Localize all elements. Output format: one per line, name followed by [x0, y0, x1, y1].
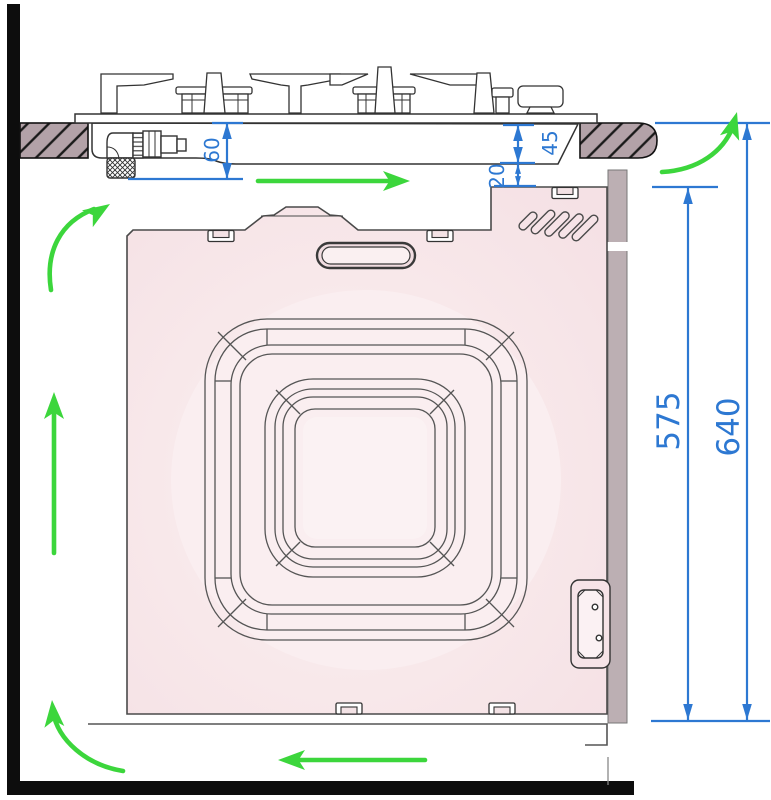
- dimension-20-label: 20: [485, 163, 509, 188]
- airflow-under-oven-arrow: [278, 750, 425, 770]
- dimension-60-label: 60: [200, 137, 224, 162]
- door-center: [303, 417, 427, 539]
- oven-mounting-clip: [489, 703, 515, 714]
- dimension-575-label: 575: [651, 391, 687, 450]
- plinth-outline: [88, 724, 607, 745]
- support-post: [474, 73, 494, 113]
- oven-installation-diagram: 60 45 20 575 640: [0, 0, 771, 800]
- airflow-bottom-left-curve-arrow: [42, 699, 123, 771]
- support-post: [204, 73, 225, 113]
- oven-mounting-clip: [208, 231, 234, 242]
- airflow-under-hob-arrow: [258, 171, 410, 191]
- dimension-575: [652, 187, 718, 721]
- floor: [7, 781, 634, 795]
- hob-plate: [75, 114, 597, 123]
- worktop-left: [20, 123, 88, 158]
- worktop-right: [580, 123, 657, 158]
- door-hinge-bracket: [571, 580, 610, 668]
- dimension-45-label: 45: [538, 130, 562, 155]
- oven-mounting-clip: [336, 703, 362, 714]
- oven-handle-slot: [317, 243, 415, 268]
- airflow-left-vertical-arrow: [44, 392, 64, 553]
- airflow-top-left-curve-arrow: [50, 196, 116, 290]
- pan-supports: [101, 67, 563, 113]
- airflow-rear-outlet-curve-arrow: [662, 109, 747, 172]
- control-knob: [518, 86, 563, 113]
- oven-mounting-clip: [552, 188, 578, 199]
- gas-pipe-thread: [107, 158, 135, 178]
- support-post: [375, 67, 395, 113]
- left-wall: [7, 4, 20, 782]
- oven-body: [127, 187, 610, 714]
- dimension-640-label: 640: [711, 397, 747, 456]
- oven-mounting-clip: [427, 231, 453, 242]
